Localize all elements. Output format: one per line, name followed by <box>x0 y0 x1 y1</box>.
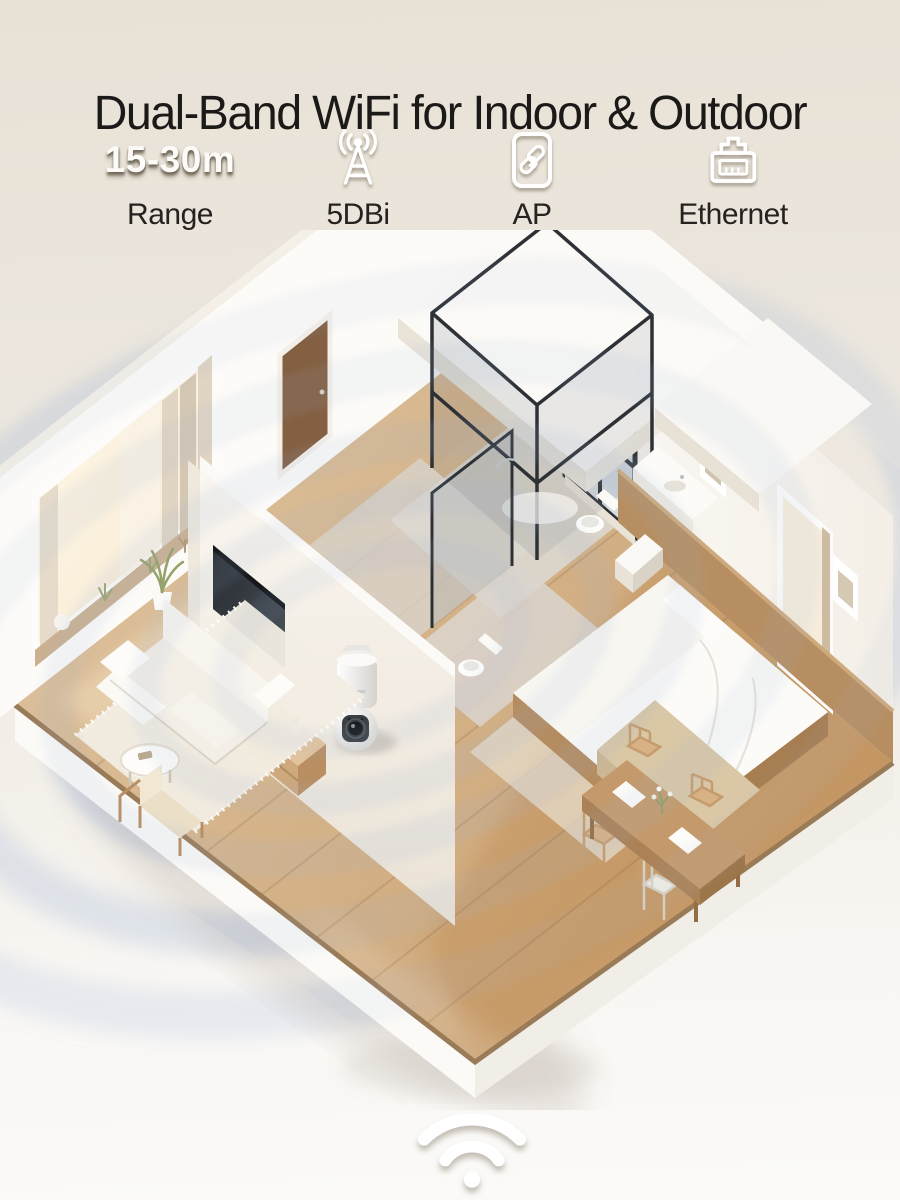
range-text-badge: 15-30m <box>105 139 236 181</box>
wifi-icon <box>399 1082 545 1192</box>
feature-ethernet-label: Ethernet <box>678 198 787 232</box>
product-marketing-image: Dual-Band WiFi for Indoor & Outdoor 15-3… <box>0 0 900 1200</box>
feature-ethernet: Ethernet <box>678 128 787 232</box>
ethernet-port-icon <box>701 132 765 188</box>
wifi-footer <box>399 1082 545 1192</box>
feature-range: 15-30m Range <box>105 128 236 232</box>
antenna-icon <box>324 130 392 190</box>
feature-antenna-label: 5DBi <box>324 198 392 232</box>
floorplan-illustration <box>0 230 900 1110</box>
feature-ap-label: AP <box>505 198 559 232</box>
ap-link-icon <box>505 129 559 191</box>
feature-ap-mode: AP <box>505 128 559 232</box>
feature-range-label: Range <box>105 198 236 232</box>
feature-antenna-gain: 5DBi <box>324 128 392 232</box>
